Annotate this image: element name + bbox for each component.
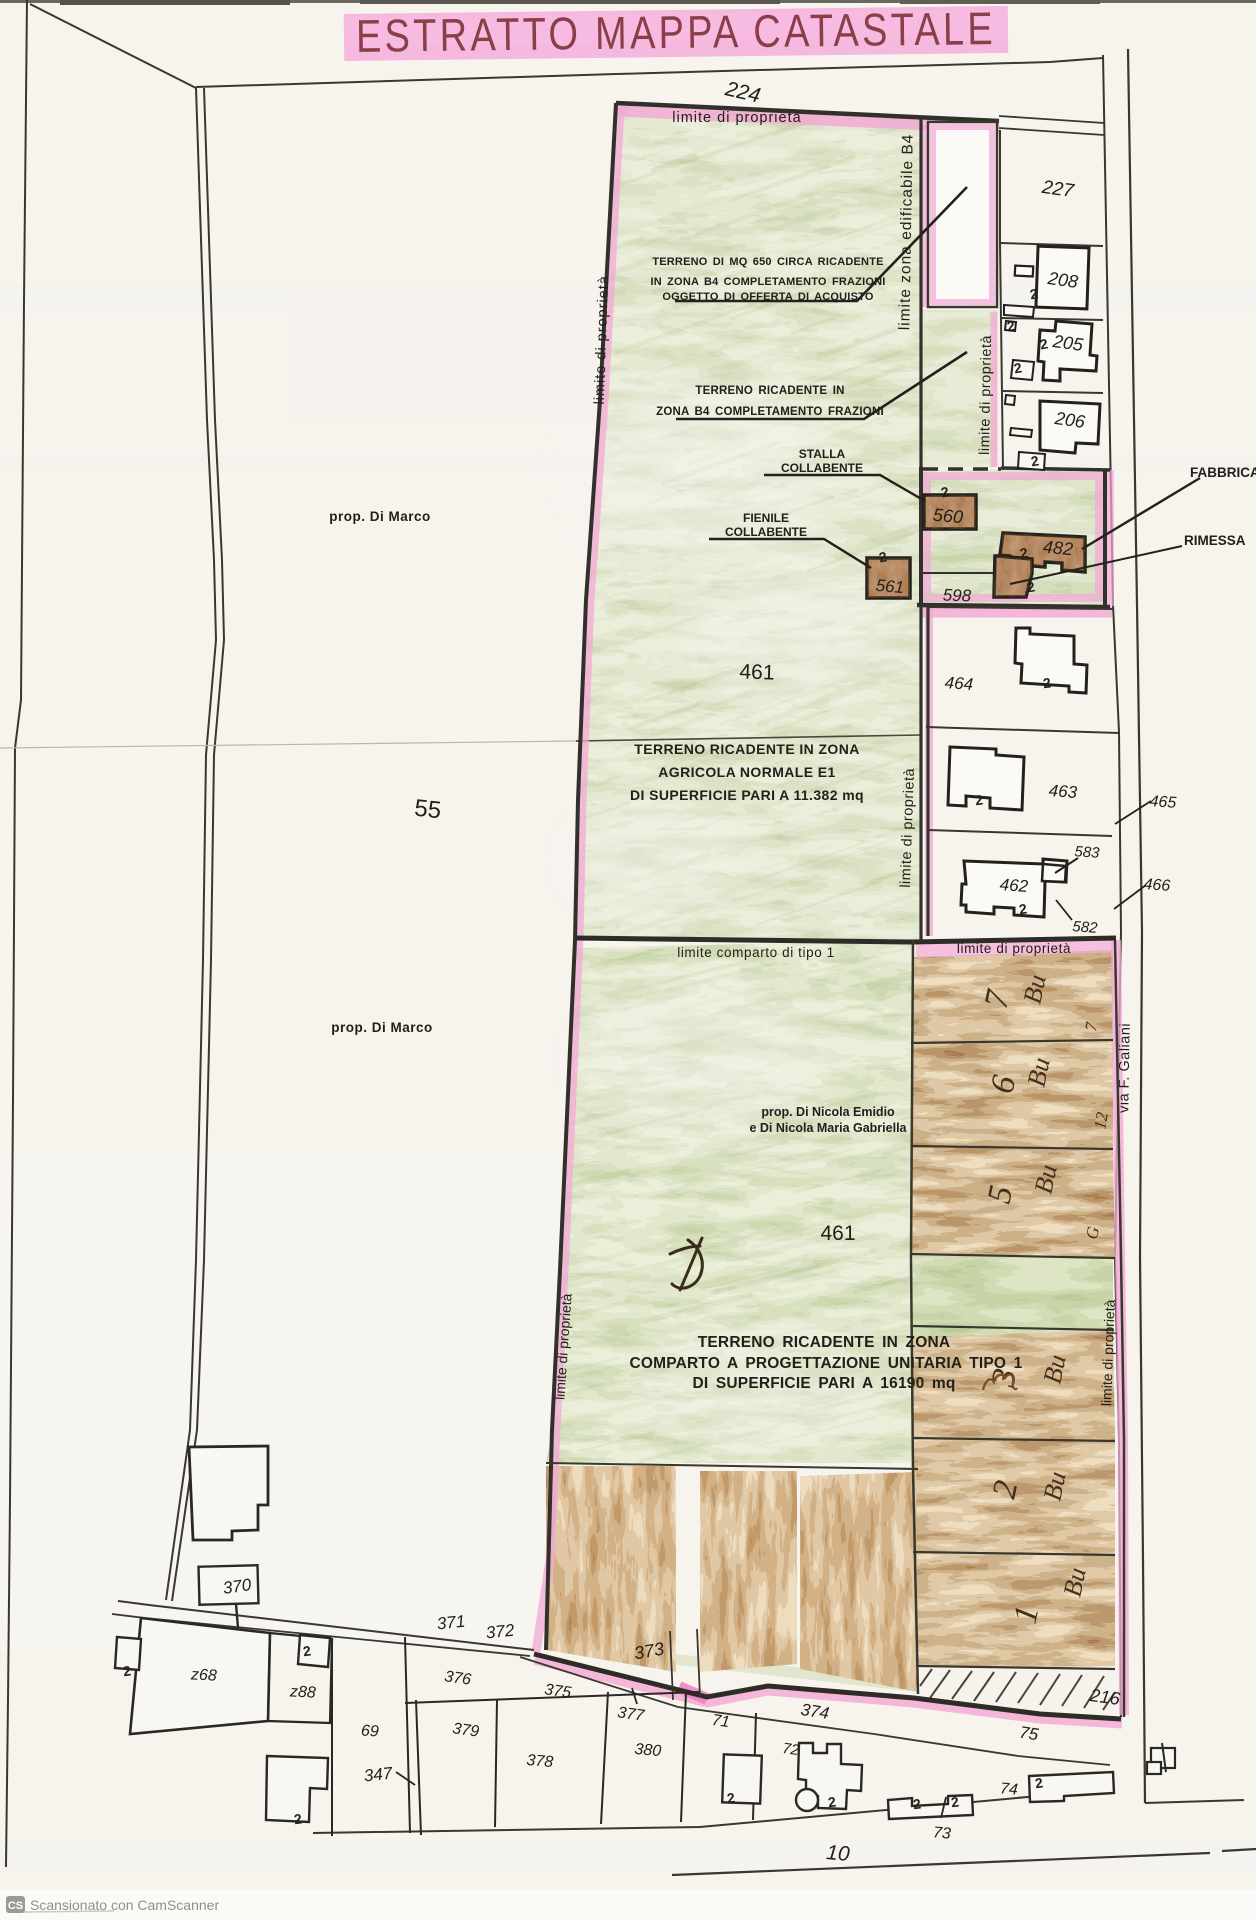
- svg-text:461: 461: [820, 1222, 855, 1245]
- svg-text:10: 10: [825, 1841, 851, 1866]
- svg-text:372: 372: [485, 1621, 516, 1643]
- svg-text:347: 347: [363, 1764, 394, 1786]
- svg-text:OGGETTO DI OFFERTA DI ACQUISTO: OGGETTO DI OFFERTA DI ACQUISTO: [662, 291, 873, 303]
- svg-text:FIENILE: FIENILE: [743, 511, 789, 525]
- svg-text:RIMESSA: RIMESSA: [1184, 533, 1246, 548]
- svg-text:75: 75: [1018, 1723, 1040, 1745]
- svg-text:Bu: Bu: [1018, 972, 1052, 1006]
- svg-text:55: 55: [413, 795, 442, 825]
- svg-text:ZONA B4 COMPLETAMENTO FRAZIONI: ZONA B4 COMPLETAMENTO FRAZIONI: [656, 406, 884, 418]
- svg-text:TERRENO RICADENTE IN: TERRENO RICADENTE IN: [695, 385, 844, 397]
- svg-text:464: 464: [944, 673, 974, 694]
- svg-text:462: 462: [999, 875, 1029, 896]
- svg-text:limite di proprietà: limite di proprietà: [977, 334, 995, 455]
- svg-text:ESTRATTO MAPPA CATASTALE: ESTRATTO MAPPA CATASTALE: [356, 2, 997, 62]
- svg-text:72: 72: [781, 1740, 801, 1759]
- svg-text:COMPARTO A PROGETTAZIONE UNITA: COMPARTO A PROGETTAZIONE UNITARIA TIPO 1: [630, 1355, 1023, 1372]
- svg-text:Bu: Bu: [1029, 1162, 1063, 1196]
- svg-text:TERRENO DI MQ 650 CIRCA RICADE: TERRENO DI MQ 650 CIRCA RICADENTE: [652, 256, 883, 268]
- svg-text:DI SUPERFICIE PARI A 11.382 mq: DI SUPERFICIE PARI A 11.382 mq: [630, 787, 864, 803]
- svg-text:461: 461: [739, 660, 775, 684]
- svg-text:583: 583: [1074, 843, 1101, 862]
- svg-text:prop. Di Nicola Emidio: prop. Di Nicola Emidio: [761, 1105, 895, 1119]
- svg-text:71: 71: [711, 1712, 731, 1731]
- svg-text:IN ZONA B4 COMPLETAMENTO FRAZI: IN ZONA B4 COMPLETAMENTO FRAZIONI: [650, 276, 885, 288]
- svg-text:COLLABENTE: COLLABENTE: [781, 461, 863, 475]
- svg-text:466: 466: [1143, 876, 1171, 895]
- svg-text:e Di Nicola Maria Gabriell: e Di Nicola Maria Gabriella: [749, 1121, 907, 1135]
- svg-text:z68: z68: [190, 1666, 218, 1684]
- svg-text:598: 598: [942, 586, 972, 606]
- svg-text:465: 465: [1149, 793, 1177, 812]
- svg-text:371: 371: [436, 1612, 466, 1634]
- svg-text:CS: CS: [8, 1900, 23, 1912]
- svg-text:limite di proprietà: limite di proprietà: [672, 110, 801, 126]
- svg-text:Scansionato con CamScanner: Scansionato con CamScanner: [30, 1897, 219, 1913]
- svg-text:73: 73: [932, 1824, 951, 1842]
- svg-text:limite di proprietà: limite di proprietà: [957, 941, 1071, 956]
- svg-text:Bu: Bu: [1038, 1469, 1072, 1503]
- svg-text:TERRENO RICADENTE IN ZONA: TERRENO RICADENTE IN ZONA: [698, 1334, 951, 1351]
- svg-text:Bu: Bu: [1022, 1055, 1056, 1089]
- svg-text:380: 380: [634, 1741, 662, 1760]
- svg-text:STALLA: STALLA: [799, 447, 846, 461]
- svg-text:561: 561: [875, 576, 905, 597]
- svg-text:AGRICOLA NORMALE E1: AGRICOLA NORMALE E1: [658, 764, 835, 780]
- svg-text:prop. Di Marco: prop. Di Marco: [331, 1020, 433, 1035]
- svg-text:limite comparto di tipo 1: limite comparto di tipo 1: [677, 945, 835, 960]
- svg-text:z88: z88: [289, 1683, 317, 1701]
- svg-text:370: 370: [222, 1575, 253, 1598]
- svg-text:TERRENO RICADENTE IN ZONA: TERRENO RICADENTE IN ZONA: [634, 741, 859, 757]
- svg-text:74: 74: [999, 1780, 1018, 1798]
- svg-text:Bu: Bu: [1038, 1352, 1072, 1386]
- svg-text:208: 208: [1046, 268, 1080, 292]
- svg-text:463: 463: [1048, 781, 1078, 802]
- svg-text:prop. Di Marco: prop. Di Marco: [329, 509, 431, 524]
- svg-text:582: 582: [1072, 918, 1099, 937]
- svg-text:560: 560: [932, 505, 964, 528]
- svg-text:FABBRICATO: FABBRICATO: [1190, 465, 1256, 480]
- svg-text:DI SUPERFICIE PARI A 16190 mq: DI SUPERFICIE PARI A 16190 mq: [692, 1375, 955, 1392]
- svg-text:limite zona edificabile B4: limite zona edificabile B4: [896, 133, 916, 330]
- svg-text:378: 378: [526, 1752, 554, 1771]
- svg-text:COLLABENTE: COLLABENTE: [725, 525, 807, 539]
- svg-text:69: 69: [361, 1723, 380, 1741]
- svg-text:482: 482: [1042, 537, 1074, 560]
- svg-text:Bu: Bu: [1058, 1565, 1092, 1599]
